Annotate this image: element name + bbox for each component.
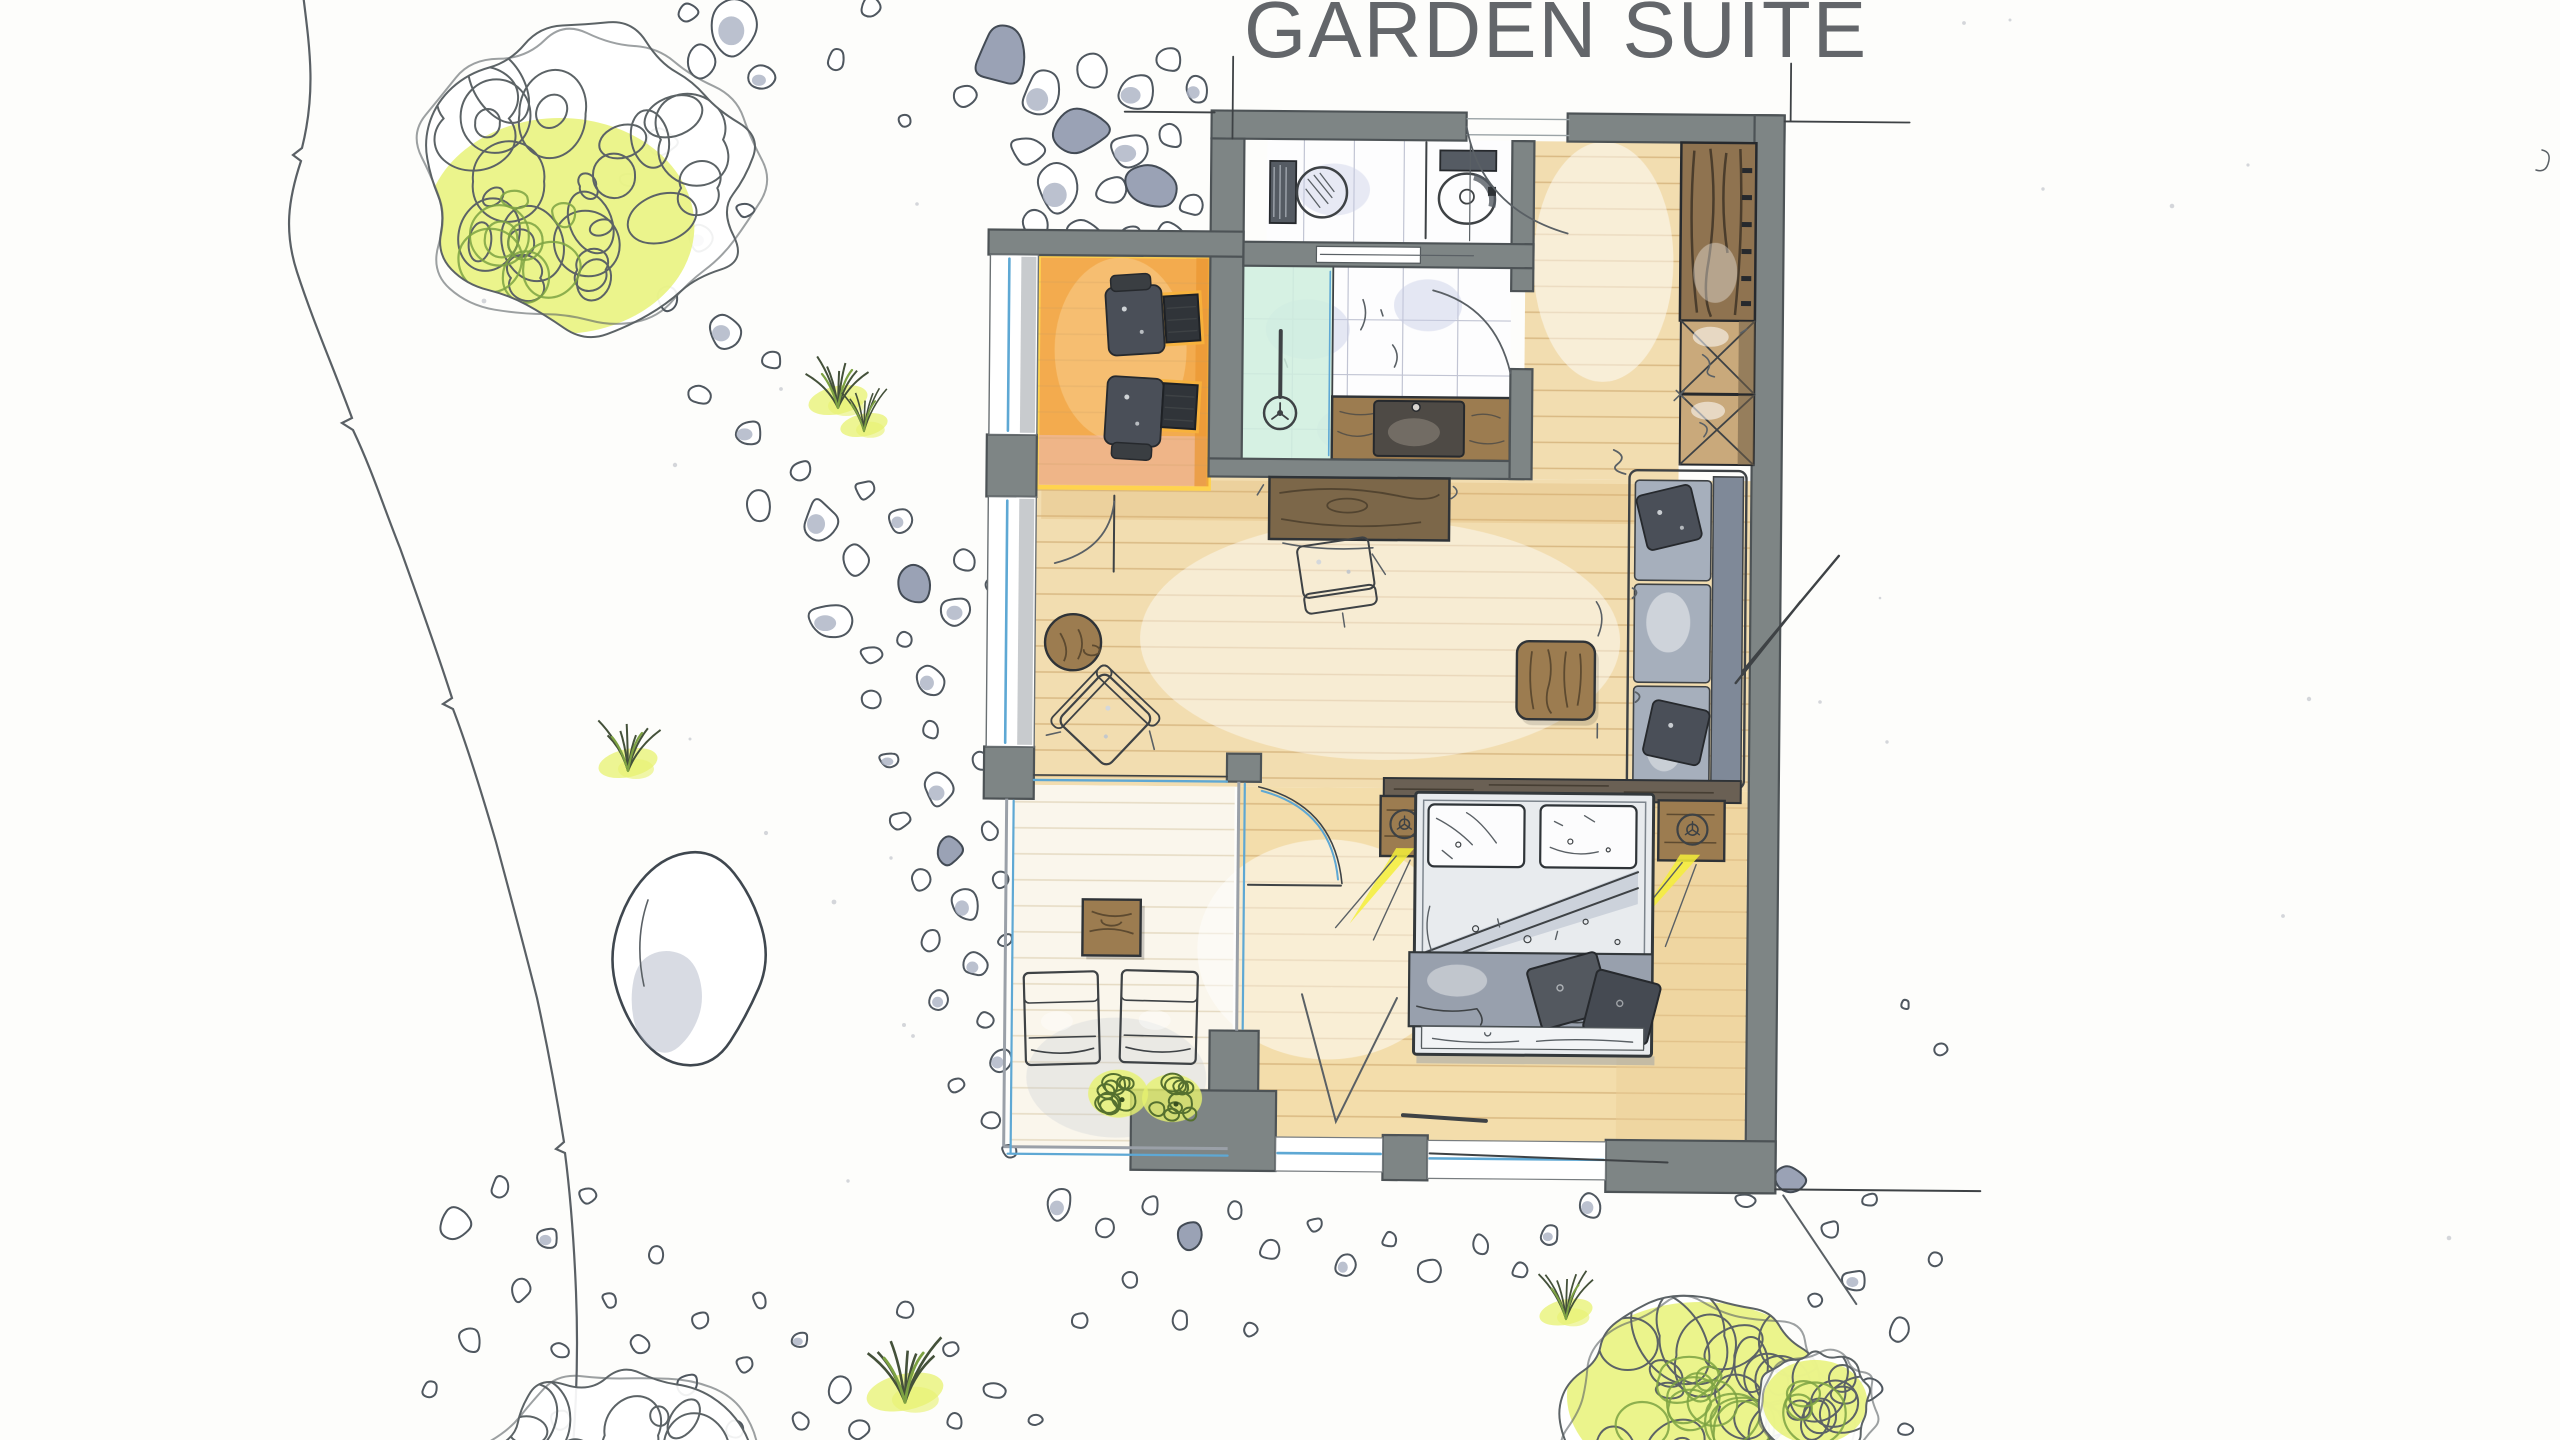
stone bbox=[1072, 1313, 1088, 1328]
stone bbox=[1898, 1423, 1913, 1434]
stone bbox=[748, 65, 775, 88]
stone bbox=[1260, 1240, 1279, 1259]
stone bbox=[1228, 1201, 1241, 1219]
nook-top-wall bbox=[988, 229, 1243, 256]
glass-junction-column bbox=[1227, 754, 1261, 782]
stone bbox=[1029, 1415, 1043, 1425]
stone bbox=[1096, 177, 1126, 202]
stone bbox=[1048, 1189, 1071, 1221]
bed-foot-strip bbox=[1422, 1026, 1644, 1050]
stone bbox=[829, 1376, 851, 1403]
tree-scribble bbox=[470, 1370, 771, 1440]
stone bbox=[1023, 70, 1059, 114]
bed bbox=[1408, 792, 1663, 1065]
stone bbox=[862, 691, 881, 709]
paper-speckle bbox=[1818, 700, 1822, 704]
stone bbox=[804, 499, 838, 541]
stone bbox=[923, 721, 938, 738]
stone bbox=[1118, 75, 1153, 109]
stone bbox=[1180, 195, 1203, 215]
stone bbox=[1077, 54, 1107, 88]
stone bbox=[1096, 1219, 1114, 1238]
nook-side-table bbox=[1161, 383, 1198, 429]
stone bbox=[1473, 1234, 1488, 1254]
stone bbox=[1890, 1317, 1909, 1341]
paper-speckle bbox=[2447, 1236, 2452, 1241]
stone bbox=[938, 836, 963, 865]
stone bbox=[954, 549, 975, 570]
stone bbox=[1541, 1225, 1558, 1245]
stone bbox=[879, 754, 898, 768]
stone bbox=[792, 1333, 807, 1347]
stone bbox=[917, 666, 945, 695]
grass-tuft bbox=[1537, 1271, 1595, 1330]
paper-speckle bbox=[482, 299, 487, 304]
tree-scribble bbox=[417, 22, 768, 337]
stone bbox=[537, 1229, 557, 1248]
stone bbox=[890, 813, 911, 830]
stone bbox=[897, 632, 911, 647]
stone bbox=[1178, 1222, 1202, 1250]
stone bbox=[990, 1049, 1011, 1072]
paper-speckle bbox=[2246, 163, 2249, 166]
paper-speckle bbox=[2009, 19, 2012, 22]
stone bbox=[1125, 165, 1176, 207]
stone bbox=[925, 773, 954, 807]
bathroom-west-wall bbox=[1209, 138, 1245, 471]
stone bbox=[1929, 1252, 1942, 1266]
stone bbox=[793, 1412, 809, 1429]
faucet-icon bbox=[1412, 403, 1420, 411]
entry-door-opening bbox=[1467, 119, 1570, 136]
stone bbox=[422, 1381, 436, 1397]
exterior-wall-bottom bbox=[1605, 1140, 1775, 1193]
bathroom bbox=[1242, 139, 1513, 461]
stone bbox=[1862, 1194, 1877, 1206]
stone bbox=[862, 0, 881, 17]
stone bbox=[1244, 1323, 1257, 1337]
paper-speckle bbox=[673, 463, 677, 467]
shower bbox=[1242, 266, 1334, 460]
window-pier bbox=[986, 434, 1037, 496]
stone bbox=[843, 544, 869, 576]
stone bbox=[1053, 109, 1110, 154]
stone bbox=[982, 821, 998, 840]
exterior-wall-top bbox=[1211, 110, 1466, 140]
bathroom-east-wall bbox=[1509, 369, 1532, 479]
stone bbox=[849, 1420, 869, 1439]
grass-tuft bbox=[863, 1337, 947, 1418]
paper-speckle bbox=[764, 831, 768, 835]
floor-plan-sheet: GARDEN SUITE bbox=[0, 0, 2560, 1440]
paper-speckle bbox=[2041, 187, 2044, 190]
stone bbox=[963, 952, 987, 975]
west-window bbox=[989, 254, 1039, 434]
stone bbox=[1142, 1196, 1157, 1214]
stone bbox=[649, 1246, 663, 1263]
wardrobe bbox=[1680, 143, 1757, 322]
stone bbox=[1187, 76, 1207, 103]
stone bbox=[977, 1012, 993, 1028]
paper-speckle bbox=[2307, 697, 2311, 701]
stone bbox=[1123, 1272, 1138, 1288]
stone bbox=[899, 115, 911, 127]
wc-partition bbox=[1426, 142, 1427, 238]
grass-tuft bbox=[596, 720, 661, 783]
stone bbox=[762, 352, 780, 368]
pillow bbox=[1428, 804, 1525, 867]
stone bbox=[688, 44, 716, 78]
stone bbox=[692, 1312, 708, 1328]
stone bbox=[897, 1302, 913, 1318]
stone bbox=[747, 490, 770, 521]
stone bbox=[688, 386, 711, 404]
stone bbox=[912, 869, 931, 891]
stone bbox=[1735, 1195, 1755, 1207]
stone bbox=[943, 1342, 958, 1356]
stone bbox=[1901, 1000, 1908, 1009]
stone bbox=[1335, 1254, 1355, 1275]
stone bbox=[512, 1279, 530, 1302]
garden-suite-plan bbox=[0, 0, 2560, 1440]
paper-speckle bbox=[915, 202, 919, 206]
exterior-wall-top bbox=[1567, 114, 1784, 144]
stone bbox=[1173, 1310, 1187, 1329]
paper-speckle bbox=[1962, 21, 1966, 25]
stone bbox=[948, 1079, 964, 1093]
page-curl-mark bbox=[2536, 150, 2549, 171]
stone bbox=[440, 1207, 471, 1239]
vanity-counter bbox=[1332, 396, 1511, 461]
study-nook bbox=[1036, 255, 1210, 488]
west-window bbox=[986, 496, 1036, 746]
paper-speckle bbox=[1885, 740, 1888, 743]
stone bbox=[982, 1112, 1001, 1128]
annotation-slash bbox=[1782, 1195, 1857, 1304]
stone bbox=[1808, 1294, 1822, 1307]
stone bbox=[889, 509, 912, 533]
stone bbox=[828, 49, 844, 70]
paper-speckle bbox=[902, 1023, 906, 1027]
stone bbox=[1934, 1043, 1947, 1055]
stone bbox=[459, 1329, 480, 1352]
stone bbox=[861, 647, 883, 663]
stone bbox=[947, 1413, 961, 1429]
stone bbox=[898, 565, 930, 602]
cabinet bbox=[1674, 390, 1755, 465]
stone bbox=[1382, 1232, 1396, 1246]
bedroom-door-leaf bbox=[1248, 885, 1341, 886]
round-side-table bbox=[1045, 614, 1101, 670]
stone bbox=[753, 1293, 765, 1309]
stone bbox=[1156, 48, 1180, 71]
bottom-window bbox=[1275, 1137, 1382, 1172]
paper-speckle bbox=[779, 387, 783, 391]
stone bbox=[1307, 1219, 1321, 1232]
stone bbox=[1111, 135, 1148, 167]
page-title: GARDEN SUITE bbox=[1244, 0, 1868, 76]
paper-speckle bbox=[911, 1034, 915, 1038]
paper-speckle bbox=[832, 900, 837, 905]
paper-speckle bbox=[689, 738, 692, 741]
paper-speckle bbox=[846, 1179, 849, 1182]
stone bbox=[712, 0, 757, 57]
stone bbox=[579, 1189, 596, 1204]
stone bbox=[941, 599, 970, 626]
window-pier bbox=[1382, 1135, 1427, 1180]
stone bbox=[1580, 1193, 1600, 1218]
stone bbox=[736, 422, 760, 445]
paper-speckle bbox=[1879, 597, 1882, 600]
stone bbox=[954, 86, 977, 107]
stone bbox=[551, 1343, 569, 1357]
terrace-side-table bbox=[1082, 899, 1145, 960]
stone bbox=[1159, 124, 1180, 147]
paper-speckle bbox=[2281, 914, 2285, 918]
stone bbox=[1038, 163, 1077, 214]
stone bbox=[737, 1357, 753, 1372]
stone bbox=[710, 315, 741, 349]
stone bbox=[1775, 1166, 1806, 1192]
large-boulder bbox=[612, 852, 765, 1065]
paper-speckle bbox=[889, 856, 892, 859]
stone bbox=[922, 930, 940, 951]
cabinet bbox=[1680, 321, 1755, 395]
stone bbox=[492, 1176, 509, 1197]
bedroom-corner-pier bbox=[1209, 1030, 1259, 1098]
stone bbox=[1821, 1221, 1838, 1237]
stone bbox=[809, 605, 853, 637]
stone bbox=[679, 4, 699, 22]
stone bbox=[855, 481, 874, 499]
stone bbox=[1418, 1260, 1441, 1282]
pillow bbox=[1540, 805, 1637, 868]
paper-speckle bbox=[2170, 204, 2175, 209]
suite-building bbox=[979, 54, 1990, 1305]
window-pier bbox=[984, 746, 1034, 798]
stone bbox=[631, 1335, 650, 1353]
stone bbox=[984, 1383, 1006, 1398]
stone bbox=[952, 889, 978, 920]
stone bbox=[929, 990, 948, 1010]
bathroom-south-wall bbox=[1209, 458, 1524, 479]
stone bbox=[602, 1293, 615, 1308]
stone bbox=[1011, 138, 1045, 164]
stone bbox=[1512, 1262, 1527, 1277]
stone bbox=[791, 461, 811, 480]
stone bbox=[976, 26, 1025, 84]
corner-extension-lines bbox=[1775, 1189, 1980, 1191]
